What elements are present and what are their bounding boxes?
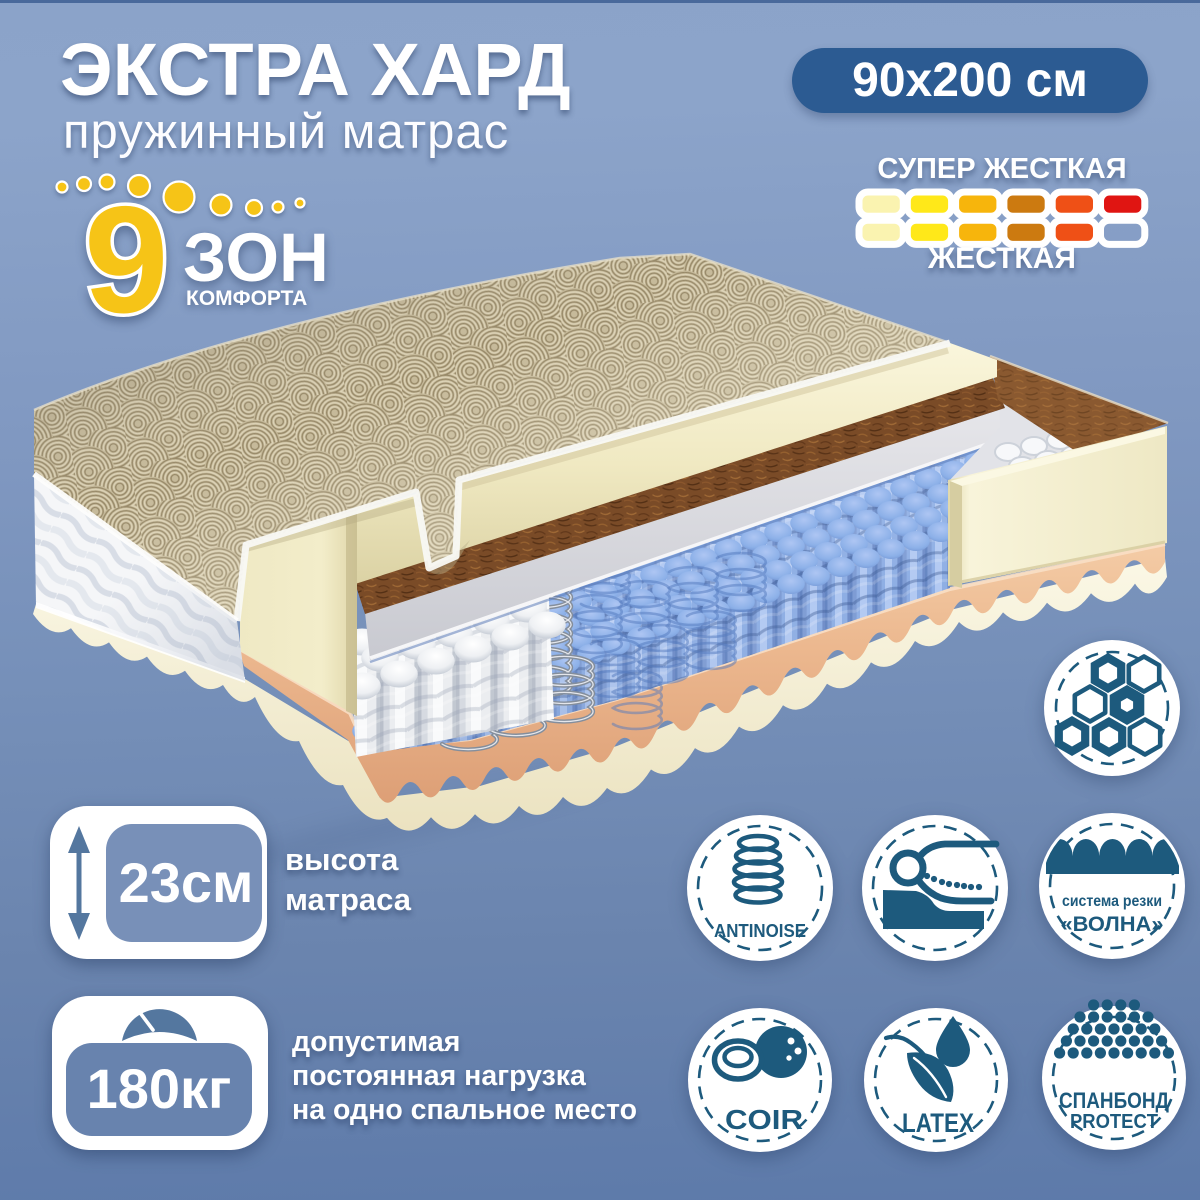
svg-text:СПАНБОНД: СПАНБОНД [1059, 1088, 1169, 1113]
svg-text:«ВОЛНА»: «ВОЛНА» [1061, 912, 1164, 936]
svg-text:система резки: система резки [1062, 893, 1162, 910]
svg-text:LATEX: LATEX [902, 1108, 974, 1138]
svg-text:PROTECT: PROTECT [1070, 1111, 1158, 1133]
svg-text:ANTINOISE: ANTINOISE [714, 921, 806, 941]
svg-text:COIR: COIR [725, 1104, 803, 1135]
